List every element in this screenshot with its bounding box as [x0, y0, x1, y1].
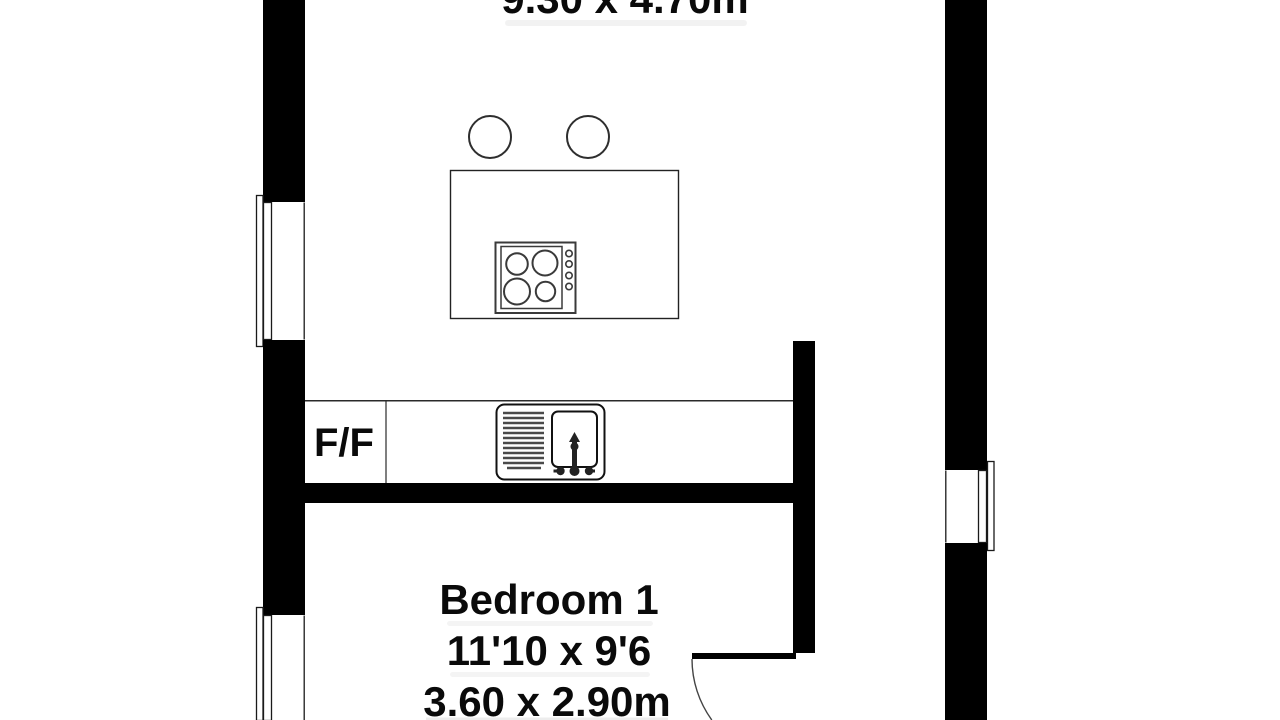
svg-text:F/F: F/F: [314, 421, 374, 465]
svg-text:11'10 x 9'6: 11'10 x 9'6: [447, 627, 652, 674]
svg-text:3.60 x 2.90m: 3.60 x 2.90m: [423, 678, 671, 720]
svg-text:Bedroom 1: Bedroom 1: [439, 576, 658, 623]
svg-text:9.30 x 4.70m: 9.30 x 4.70m: [501, 0, 749, 22]
